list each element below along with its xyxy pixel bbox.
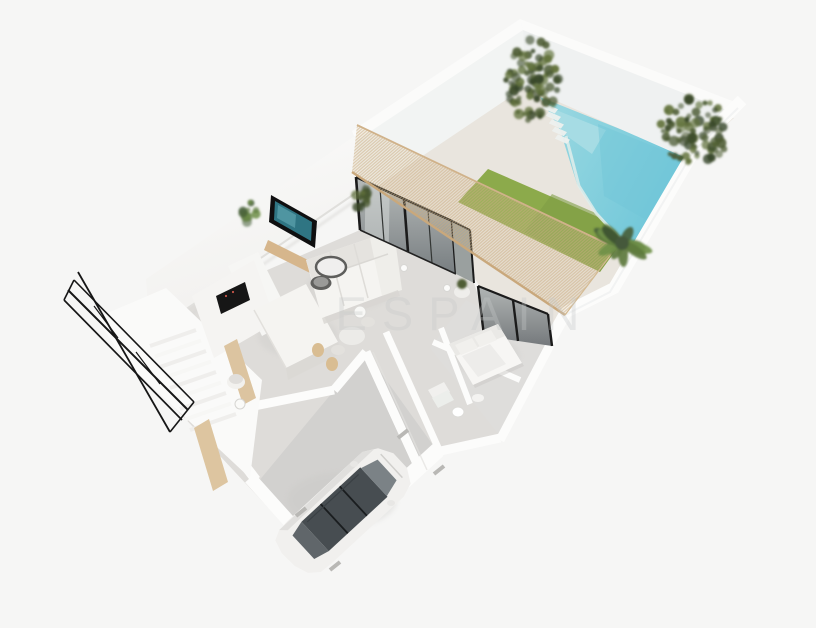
svg-text:ESPAIN: ESPAIN bbox=[336, 287, 595, 340]
